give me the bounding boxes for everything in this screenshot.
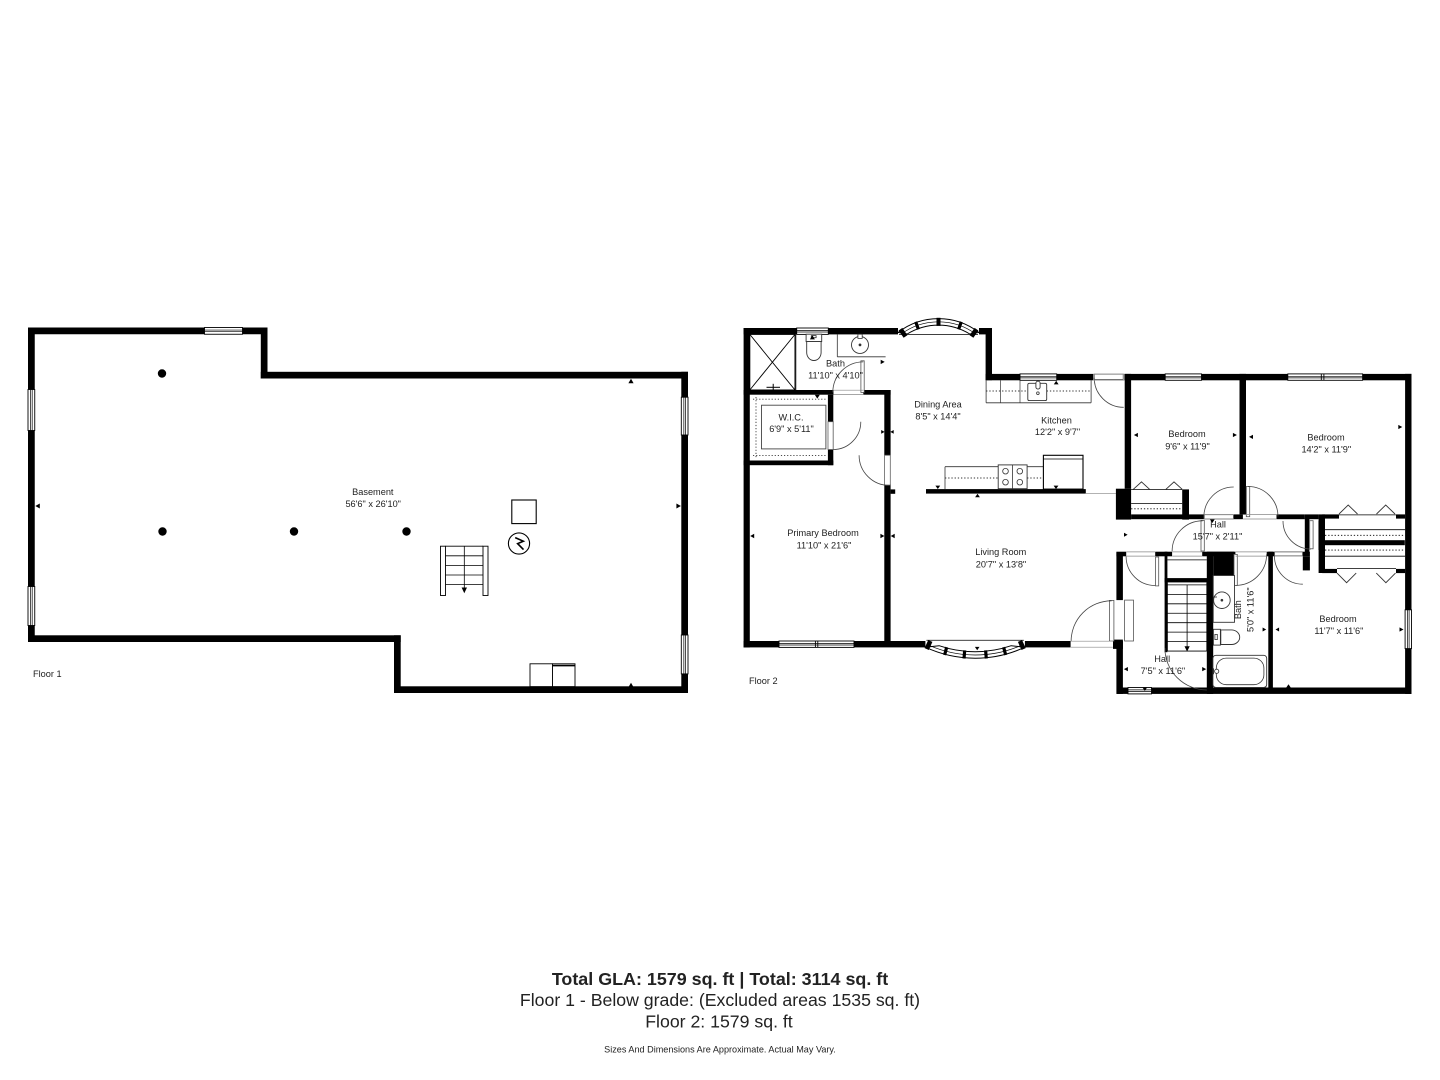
svg-text:11'10" x 21'6": 11'10" x 21'6"	[797, 541, 852, 551]
svg-text:Living Room: Living Room	[975, 547, 1026, 557]
svg-text:Total GLA: 1579 sq. ft | Total: Total GLA: 1579 sq. ft | Total: 3114 sq.…	[552, 969, 888, 989]
svg-text:Primary Bedroom: Primary Bedroom	[787, 528, 859, 538]
svg-text:56'6" x 26'10": 56'6" x 26'10"	[345, 499, 401, 509]
svg-text:5'0" x 11'6": 5'0" x 11'6"	[1246, 587, 1256, 632]
svg-text:Basement: Basement	[352, 487, 394, 497]
svg-text:12'2" x 9'7": 12'2" x 9'7"	[1035, 427, 1080, 437]
svg-text:Floor 1: Floor 1	[33, 669, 62, 679]
svg-text:Sizes And Dimensions Are Appro: Sizes And Dimensions Are Approximate. Ac…	[604, 1045, 836, 1055]
svg-text:Hall: Hall	[1210, 520, 1226, 530]
svg-text:7'5" x 11'6": 7'5" x 11'6"	[1141, 666, 1186, 676]
svg-text:Bedroom: Bedroom	[1319, 614, 1357, 624]
svg-text:Bath: Bath	[1233, 600, 1243, 619]
svg-text:Dining Area: Dining Area	[914, 400, 962, 410]
svg-text:11'7" x 11'6": 11'7" x 11'6"	[1314, 626, 1363, 636]
svg-text:6'9" x 5'11": 6'9" x 5'11"	[769, 424, 814, 434]
svg-text:Kitchen: Kitchen	[1041, 416, 1072, 426]
svg-text:Bedroom: Bedroom	[1307, 433, 1345, 443]
svg-text:8'5" x 14'4": 8'5" x 14'4"	[915, 412, 960, 422]
svg-text:Bedroom: Bedroom	[1168, 429, 1206, 439]
svg-text:14'2" x 11'9": 14'2" x 11'9"	[1301, 445, 1351, 455]
svg-text:Floor 2: 1579 sq. ft: Floor 2: 1579 sq. ft	[645, 1012, 793, 1032]
svg-text:20'7" x 13'8": 20'7" x 13'8"	[976, 560, 1026, 570]
svg-text:Floor 1 - Below grade: (Exclud: Floor 1 - Below grade: (Excluded areas 1…	[520, 990, 920, 1010]
svg-text:W.I.C.: W.I.C.	[778, 413, 803, 423]
svg-text:11'10" x 4'10": 11'10" x 4'10"	[808, 371, 863, 381]
svg-text:15'7" x 2'11": 15'7" x 2'11"	[1193, 532, 1243, 542]
svg-text:Hall: Hall	[1154, 654, 1170, 664]
svg-text:Floor 2: Floor 2	[749, 676, 778, 686]
svg-text:9'6" x 11'9": 9'6" x 11'9"	[1165, 442, 1210, 452]
svg-text:Bath: Bath	[826, 359, 845, 369]
